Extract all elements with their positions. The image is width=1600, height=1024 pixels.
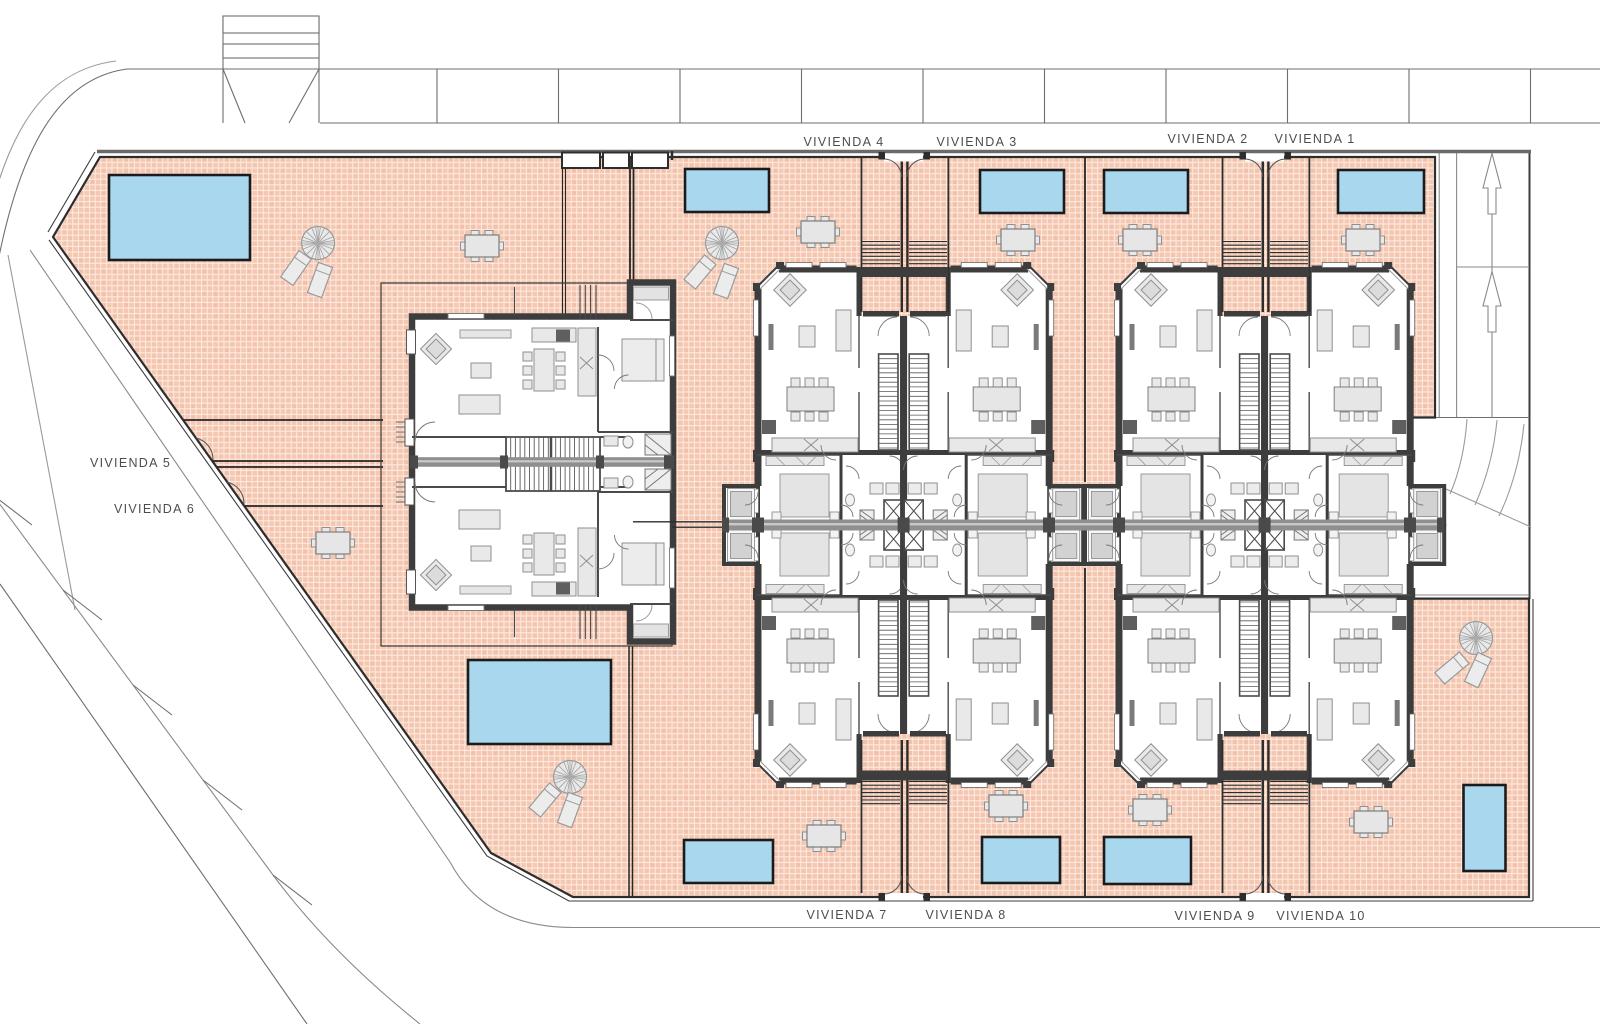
svg-text:VIVIENDA 9: VIVIENDA 9 bbox=[1174, 909, 1255, 923]
svg-text:VIVIENDA 8: VIVIENDA 8 bbox=[925, 908, 1006, 922]
svg-text:VIVIENDA 3: VIVIENDA 3 bbox=[936, 135, 1017, 149]
svg-text:VIVIENDA 4: VIVIENDA 4 bbox=[803, 135, 884, 149]
svg-text:VIVIENDA 7: VIVIENDA 7 bbox=[806, 908, 887, 922]
svg-text:VIVIENDA 10: VIVIENDA 10 bbox=[1276, 909, 1365, 923]
svg-text:VIVIENDA 5: VIVIENDA 5 bbox=[90, 456, 171, 470]
svg-text:VIVIENDA 1: VIVIENDA 1 bbox=[1274, 132, 1355, 146]
svg-text:VIVIENDA 6: VIVIENDA 6 bbox=[114, 502, 195, 516]
svg-text:VIVIENDA 2: VIVIENDA 2 bbox=[1167, 132, 1248, 146]
